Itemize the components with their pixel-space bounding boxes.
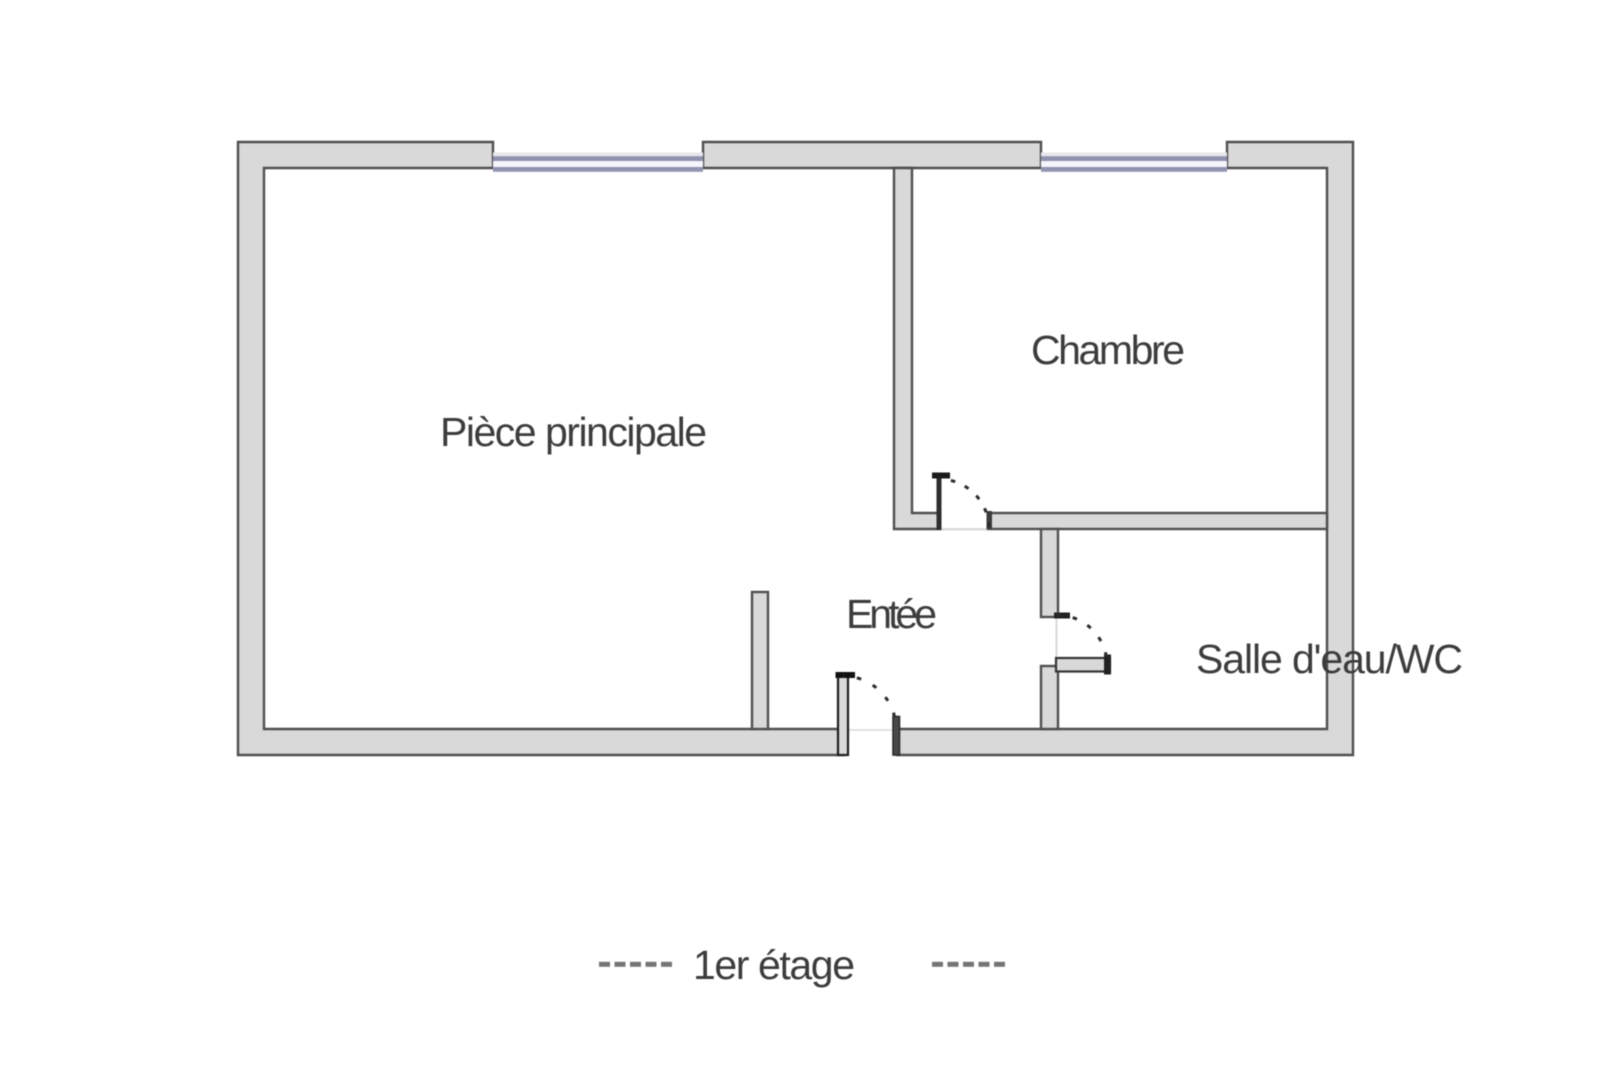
svg-text:Salle d'eau/WC: Salle d'eau/WC: [1196, 636, 1463, 682]
svg-text:Entée: Entée: [846, 591, 937, 637]
svg-text:Chambre: Chambre: [1031, 327, 1185, 373]
svg-text:1er étage: 1er étage: [693, 942, 855, 988]
svg-text:Pièce principale: Pièce principale: [440, 409, 707, 455]
